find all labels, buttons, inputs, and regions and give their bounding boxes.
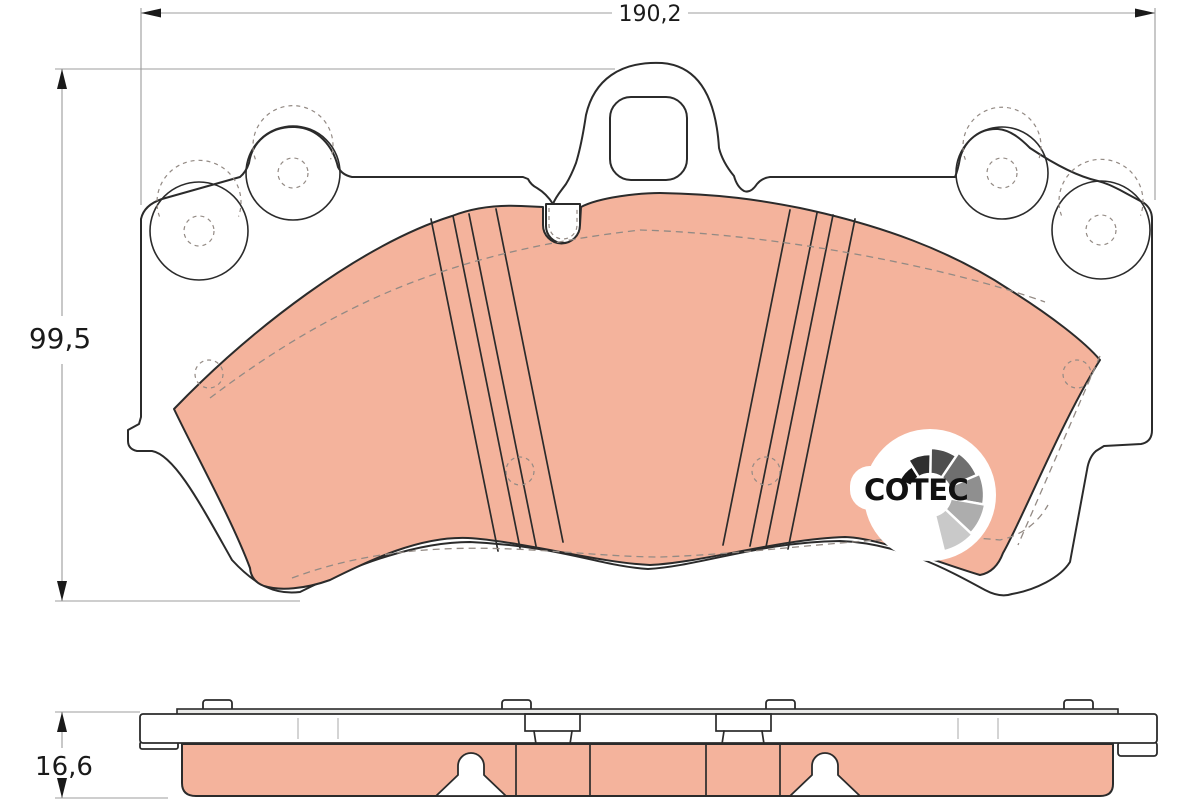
arrow-up-icon <box>57 69 67 89</box>
arrow-right-icon <box>1135 9 1155 18</box>
tab-hole <box>610 97 687 180</box>
backplate-lip-right <box>1118 742 1157 756</box>
dimension-thickness-label: 16,6 <box>35 752 93 782</box>
friction-side <box>182 744 1113 796</box>
backplate-side <box>140 714 1157 743</box>
technical-drawing-page: COTEC <box>0 0 1200 800</box>
side-view <box>140 700 1157 796</box>
dimension-height-label: 99,5 <box>29 322 91 355</box>
logo-text: COTEC <box>864 473 968 507</box>
brake-pad-drawing: COTEC <box>0 0 1200 800</box>
arrow-down-icon <box>57 581 67 601</box>
front-view: COTEC <box>128 63 1152 595</box>
arrow-left-icon <box>141 9 161 18</box>
notch-hidden-line <box>549 208 577 239</box>
arrow-up-icon <box>57 712 67 732</box>
dimension-width-label: 190,2 <box>619 2 682 27</box>
